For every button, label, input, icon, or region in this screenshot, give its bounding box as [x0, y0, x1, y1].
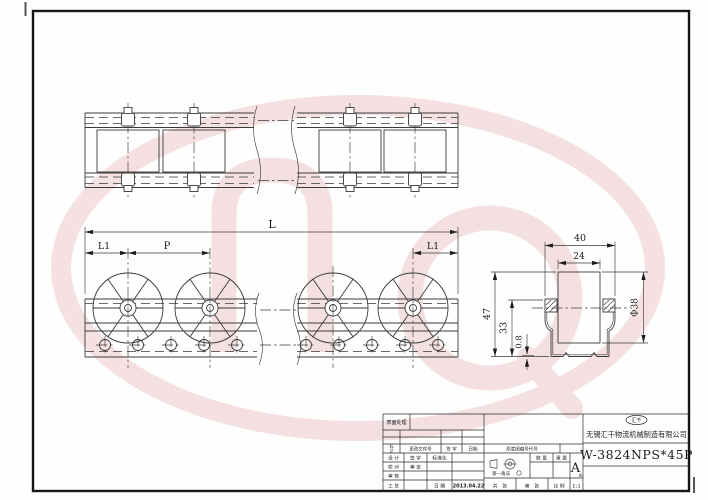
approve-check-label: 审 定: [410, 464, 421, 471]
mark-label-bottom: 记: [390, 447, 394, 453]
surface-treatment-label: 表面处理: [386, 419, 406, 426]
skate-wheels: [93, 248, 448, 368]
dim-24-label: 24: [573, 252, 585, 262]
dim-L1-left-label: L1: [98, 241, 110, 252]
weight-label: 重 量: [556, 455, 567, 462]
size-sub-label: 张: [579, 473, 583, 478]
review-label: 审 核: [388, 473, 399, 480]
quantity-label: 数 量: [536, 455, 547, 462]
cad-drawing: L L1 P L1: [0, 0, 708, 500]
scale-label: 比 例: [553, 483, 564, 490]
scale-value: 1:1: [572, 484, 581, 490]
drawing-frame: [33, 11, 689, 491]
sign-label: 签 字: [446, 446, 457, 453]
base-drawing-no-label: 原底图编号代号: [506, 446, 538, 453]
change-doc-label: 更改文件号: [409, 446, 432, 453]
sheet-total-label: 共 张: [493, 483, 508, 490]
process-label: 工 艺: [388, 484, 399, 490]
dim-47-label: 47: [482, 308, 493, 320]
front-view: L L1 P L1: [85, 218, 458, 368]
dim-L1-right-label: L1: [427, 241, 439, 252]
sheet-no-label: 第 张: [525, 483, 540, 490]
drawing-sheet: L L1 P L1: [0, 0, 708, 500]
dim-33-label: 33: [499, 322, 510, 334]
date-label: 日 期: [434, 484, 445, 490]
company-name: 无锡汇千物流机械制造有限公司: [586, 430, 687, 439]
dimension-L1-left: L1: [85, 241, 128, 255]
dimension-P: P: [128, 241, 210, 255]
dim-0.8-label: 0.8: [515, 335, 525, 349]
projection-label: 第一角法: [492, 470, 510, 477]
dim-40-label: 40: [574, 233, 586, 244]
part-number: W-3824NPS*45P: [580, 447, 693, 462]
sign-cell-label: 签 字: [410, 455, 421, 462]
dim-L-label: L: [268, 218, 276, 231]
watermark-logo: [61, 105, 655, 431]
standardization-label: 标准化: [432, 455, 447, 462]
design-label: 设 计: [388, 455, 399, 462]
company-logo-text: 汇千: [631, 417, 641, 424]
date-header-label: 日期: [469, 447, 478, 453]
date-value: 2013.04.22: [453, 484, 485, 490]
check-label: 校 对: [388, 464, 399, 471]
dim-P-label: P: [164, 241, 171, 252]
dim-d38-label: Φ38: [631, 298, 641, 317]
